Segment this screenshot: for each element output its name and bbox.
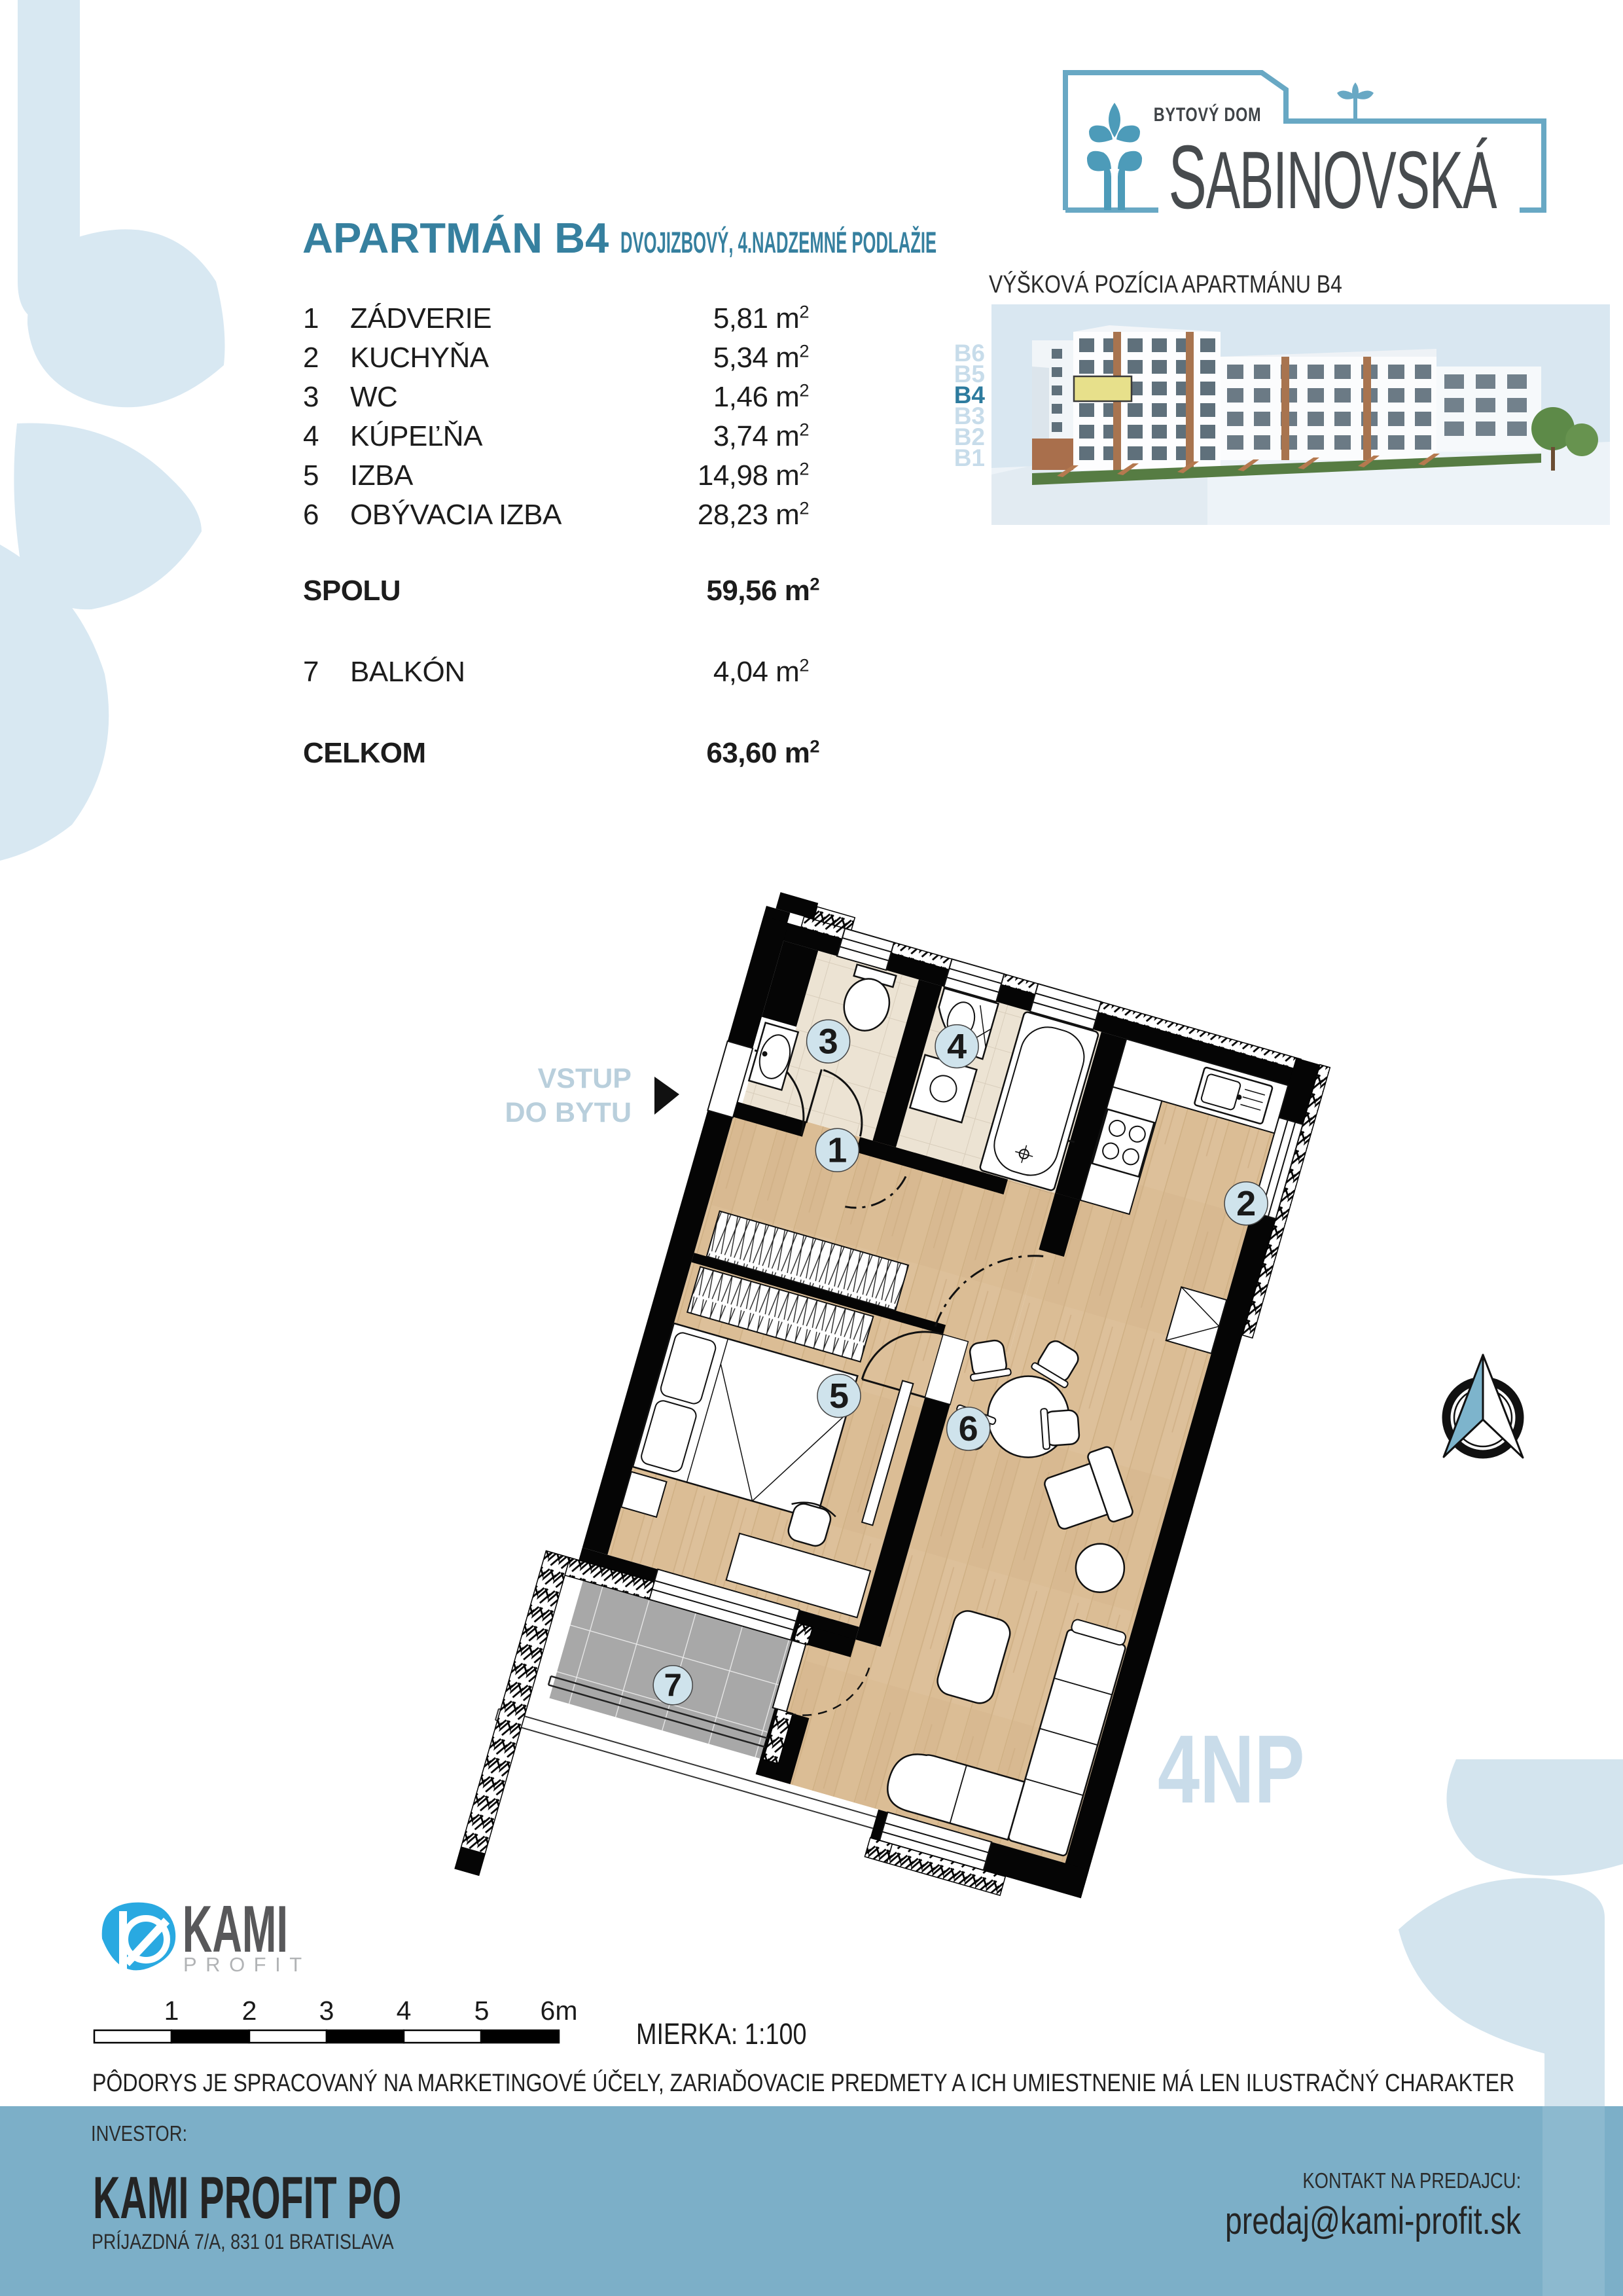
svg-text:2: 2 <box>242 1996 257 2026</box>
svg-text:6m: 6m <box>541 1996 578 2026</box>
svg-text:4: 4 <box>397 1996 412 2026</box>
svg-text:3: 3 <box>319 1996 334 2026</box>
svg-text:1: 1 <box>164 1996 179 2026</box>
svg-text:5: 5 <box>474 1996 490 2026</box>
